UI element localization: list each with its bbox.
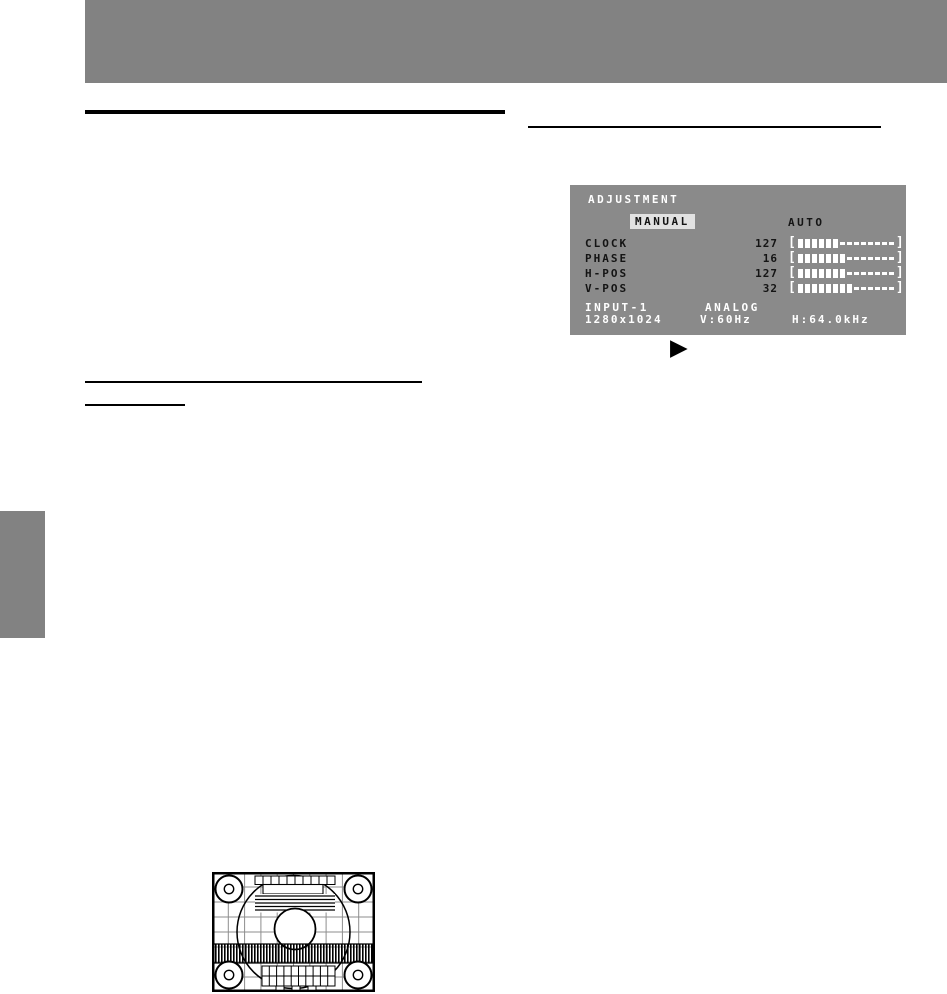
bar-filled-segment (826, 254, 831, 263)
bar-close-bracket: ] (896, 282, 904, 294)
bar-filled-segment (826, 284, 831, 293)
bar-close-bracket: ] (896, 267, 904, 279)
osd-manual-option: MANUAL (630, 214, 695, 229)
bar-filled-segment (840, 284, 845, 293)
page-header-band (85, 0, 947, 83)
pattern-top-squares (255, 876, 335, 885)
bar-open-bracket: [ (788, 237, 796, 249)
pattern-stripe-band (215, 944, 373, 963)
osd-row-value: 127 (674, 237, 778, 250)
osd-adjustment-menu: ADJUSTMENT MANUAL AUTO CLOCK 127 [ ] PHA… (570, 185, 906, 335)
left-column-subheading-underline (85, 404, 185, 406)
bar-filled-segment (833, 284, 838, 293)
bar-empty-segment (847, 242, 852, 245)
bar-empty-segment (854, 287, 859, 290)
bar-empty-segment (854, 242, 859, 245)
bar-filled-segment (819, 284, 824, 293)
bar-filled-segment (826, 269, 831, 278)
bar-filled-segment (833, 254, 838, 263)
pattern-center-circle (275, 909, 316, 950)
bar-empty-segment (868, 272, 873, 275)
bar-empty-segment (889, 272, 894, 275)
bar-filled-segment (798, 254, 803, 263)
bar-filled-segment (847, 284, 852, 293)
bar-empty-segment (889, 242, 894, 245)
osd-auto-option: AUTO (788, 216, 825, 229)
pattern-white-block (263, 885, 323, 895)
bar-empty-segment (875, 257, 880, 260)
bar-empty-segment (847, 272, 852, 275)
osd-row-value: 127 (674, 267, 778, 280)
bar-empty-segment (875, 272, 880, 275)
bar-empty-segment (861, 242, 866, 245)
bar-empty-segment (868, 287, 873, 290)
bar-empty-segment (861, 257, 866, 260)
bar-filled-segment (798, 284, 803, 293)
bar-empty-segment (875, 287, 880, 290)
bar-empty-segment (868, 242, 873, 245)
bar-filled-segment (812, 239, 817, 248)
bar-empty-segment (861, 287, 866, 290)
bar-close-bracket: ] (896, 252, 904, 264)
bar-empty-segment (854, 272, 859, 275)
section-tab-marker (0, 511, 45, 638)
bar-empty-segment (882, 242, 887, 245)
osd-row-bar-segments (798, 254, 894, 263)
osd-row-level-bar: [ ] (788, 281, 898, 296)
osd-row-bar-segments (798, 269, 894, 278)
bar-filled-segment (805, 269, 810, 278)
osd-title: ADJUSTMENT (588, 193, 679, 206)
bar-empty-segment (889, 287, 894, 290)
osd-row: PHASE 16 [ ] (584, 251, 898, 266)
bar-filled-segment (798, 269, 803, 278)
bar-empty-segment (861, 272, 866, 275)
bar-empty-segment (854, 257, 859, 260)
osd-row-level-bar: [ ] (788, 236, 898, 251)
bar-filled-segment (812, 254, 817, 263)
bar-open-bracket: [ (788, 282, 796, 294)
osd-row: H-POS 127 [ ] (584, 266, 898, 281)
bar-open-bracket: [ (788, 252, 796, 264)
bar-close-bracket: ] (896, 237, 904, 249)
osd-row-value: 16 (674, 252, 778, 265)
bar-filled-segment (805, 254, 810, 263)
bar-filled-segment (798, 239, 803, 248)
bar-empty-segment (882, 272, 887, 275)
osd-row-label: V-POS (585, 282, 628, 295)
bar-filled-segment (840, 254, 845, 263)
osd-row-value: 32 (674, 282, 778, 295)
bar-filled-segment (833, 269, 838, 278)
osd-resolution: 1280x1024 (585, 313, 663, 326)
bar-filled-segment (819, 254, 824, 263)
osd-vertical-frequency: V:60Hz (700, 313, 752, 326)
left-column-heading-rule (85, 110, 505, 114)
bar-empty-segment (868, 257, 873, 260)
left-column-subheading-rule (85, 381, 422, 383)
bar-filled-segment (819, 269, 824, 278)
osd-row-level-bar: [ ] (788, 266, 898, 281)
bar-empty-segment (875, 242, 880, 245)
bar-empty-segment (847, 257, 852, 260)
bar-filled-segment (819, 239, 824, 248)
bar-filled-segment (826, 239, 831, 248)
osd-row-label: PHASE (585, 252, 628, 265)
bar-filled-segment (805, 284, 810, 293)
osd-adjustment-rows: CLOCK 127 [ ] PHASE 16 [ ] H-POS 127 [ ]… (584, 236, 898, 296)
next-step-arrow-icon: ▶ (670, 337, 688, 360)
osd-row-bar-segments (798, 239, 894, 248)
right-column-heading-rule (528, 126, 881, 128)
bar-filled-segment (812, 284, 817, 293)
bar-filled-segment (812, 269, 817, 278)
bar-filled-segment (805, 239, 810, 248)
bar-empty-segment (840, 242, 845, 245)
bar-filled-segment (840, 269, 845, 278)
osd-row: CLOCK 127 [ ] (584, 236, 898, 251)
osd-row-label: CLOCK (585, 237, 628, 250)
bar-filled-segment (833, 239, 838, 248)
bar-empty-segment (889, 257, 894, 260)
osd-horizontal-frequency: H:64.0kHz (792, 313, 870, 326)
bar-open-bracket: [ (788, 267, 796, 279)
osd-row: V-POS 32 [ ] (584, 281, 898, 296)
osd-row-label: H-POS (585, 267, 628, 280)
osd-row-level-bar: [ ] (788, 251, 898, 266)
bar-empty-segment (882, 257, 887, 260)
osd-row-bar-segments (798, 284, 894, 293)
bar-empty-segment (882, 287, 887, 290)
monitor-test-pattern-image (212, 872, 375, 992)
